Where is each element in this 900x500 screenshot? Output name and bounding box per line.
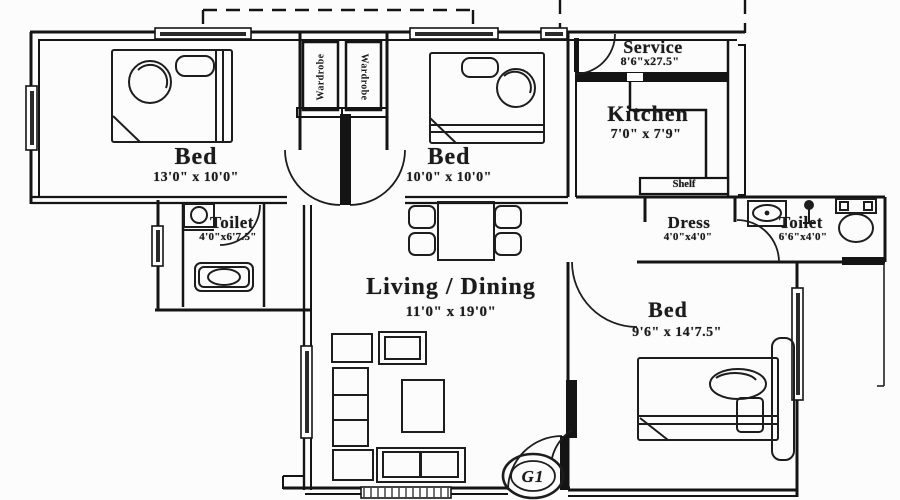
bed3-door-arc xyxy=(572,262,637,327)
room-dims-service: 8'6"x27.5" xyxy=(621,55,680,67)
window-left-toilet xyxy=(152,226,163,266)
window-grill-bottom xyxy=(361,487,451,498)
shelf-label: Shelf xyxy=(673,180,696,191)
window-left-bed1 xyxy=(26,86,37,150)
room-label-bed-2: Bed xyxy=(427,145,470,169)
wardrobe-left-label: Wardrobe xyxy=(316,54,327,101)
dining-set xyxy=(409,202,521,260)
room-label-bed-1: Bed xyxy=(174,145,217,169)
wc-icon xyxy=(836,199,876,242)
window-top-right-small xyxy=(541,28,567,39)
bed2-furniture xyxy=(430,53,544,143)
room-dims-bed-1: 13'0" x 10'0" xyxy=(153,171,239,185)
room-label-living: Living / Dining xyxy=(366,275,536,299)
window-top-left xyxy=(155,28,251,39)
room-dims-kitchen: 7'0" x 7'9" xyxy=(611,128,682,142)
window-living-left xyxy=(301,346,312,438)
room-label-toilet-right: Toilet xyxy=(779,214,823,231)
bed1-furniture xyxy=(112,50,232,142)
floor-plan: Bed 13'0" x 10'0" Bed 10'0" x 10'0" Serv… xyxy=(0,0,900,500)
wardrobe-right-label: Wardrobe xyxy=(359,54,370,101)
floor-plan-drawing xyxy=(0,0,900,500)
room-dims-dress: 4'0"x4'0" xyxy=(664,232,713,243)
room-dims-bed-3: 9'6" x 14'7.5" xyxy=(632,326,722,340)
service-door-leaf xyxy=(574,38,579,72)
bed1-door-arc xyxy=(285,150,340,205)
living-furniture xyxy=(332,332,465,482)
room-dims-toilet-left: 4'0"x6'7.5" xyxy=(199,232,256,243)
unit-entrance-label: G1 xyxy=(522,468,545,485)
room-label-toilet-left: Toilet xyxy=(210,214,254,231)
bed2-door-arc xyxy=(350,150,405,205)
room-label-bed-3: Bed xyxy=(648,299,688,321)
bed3-furniture xyxy=(638,338,794,460)
room-dims-living: 11'0" x 19'0" xyxy=(406,305,497,320)
room-label-kitchen: Kitchen xyxy=(607,103,689,125)
room-dims-bed-2: 10'0" x 10'0" xyxy=(406,171,492,185)
wardrobe-cabinets xyxy=(297,42,387,117)
kitchen-door-gap xyxy=(627,73,643,81)
room-dims-toilet-right: 6'6"x4'0" xyxy=(779,232,828,243)
window-top-middle xyxy=(410,28,498,39)
room-label-dress: Dress xyxy=(668,214,711,231)
